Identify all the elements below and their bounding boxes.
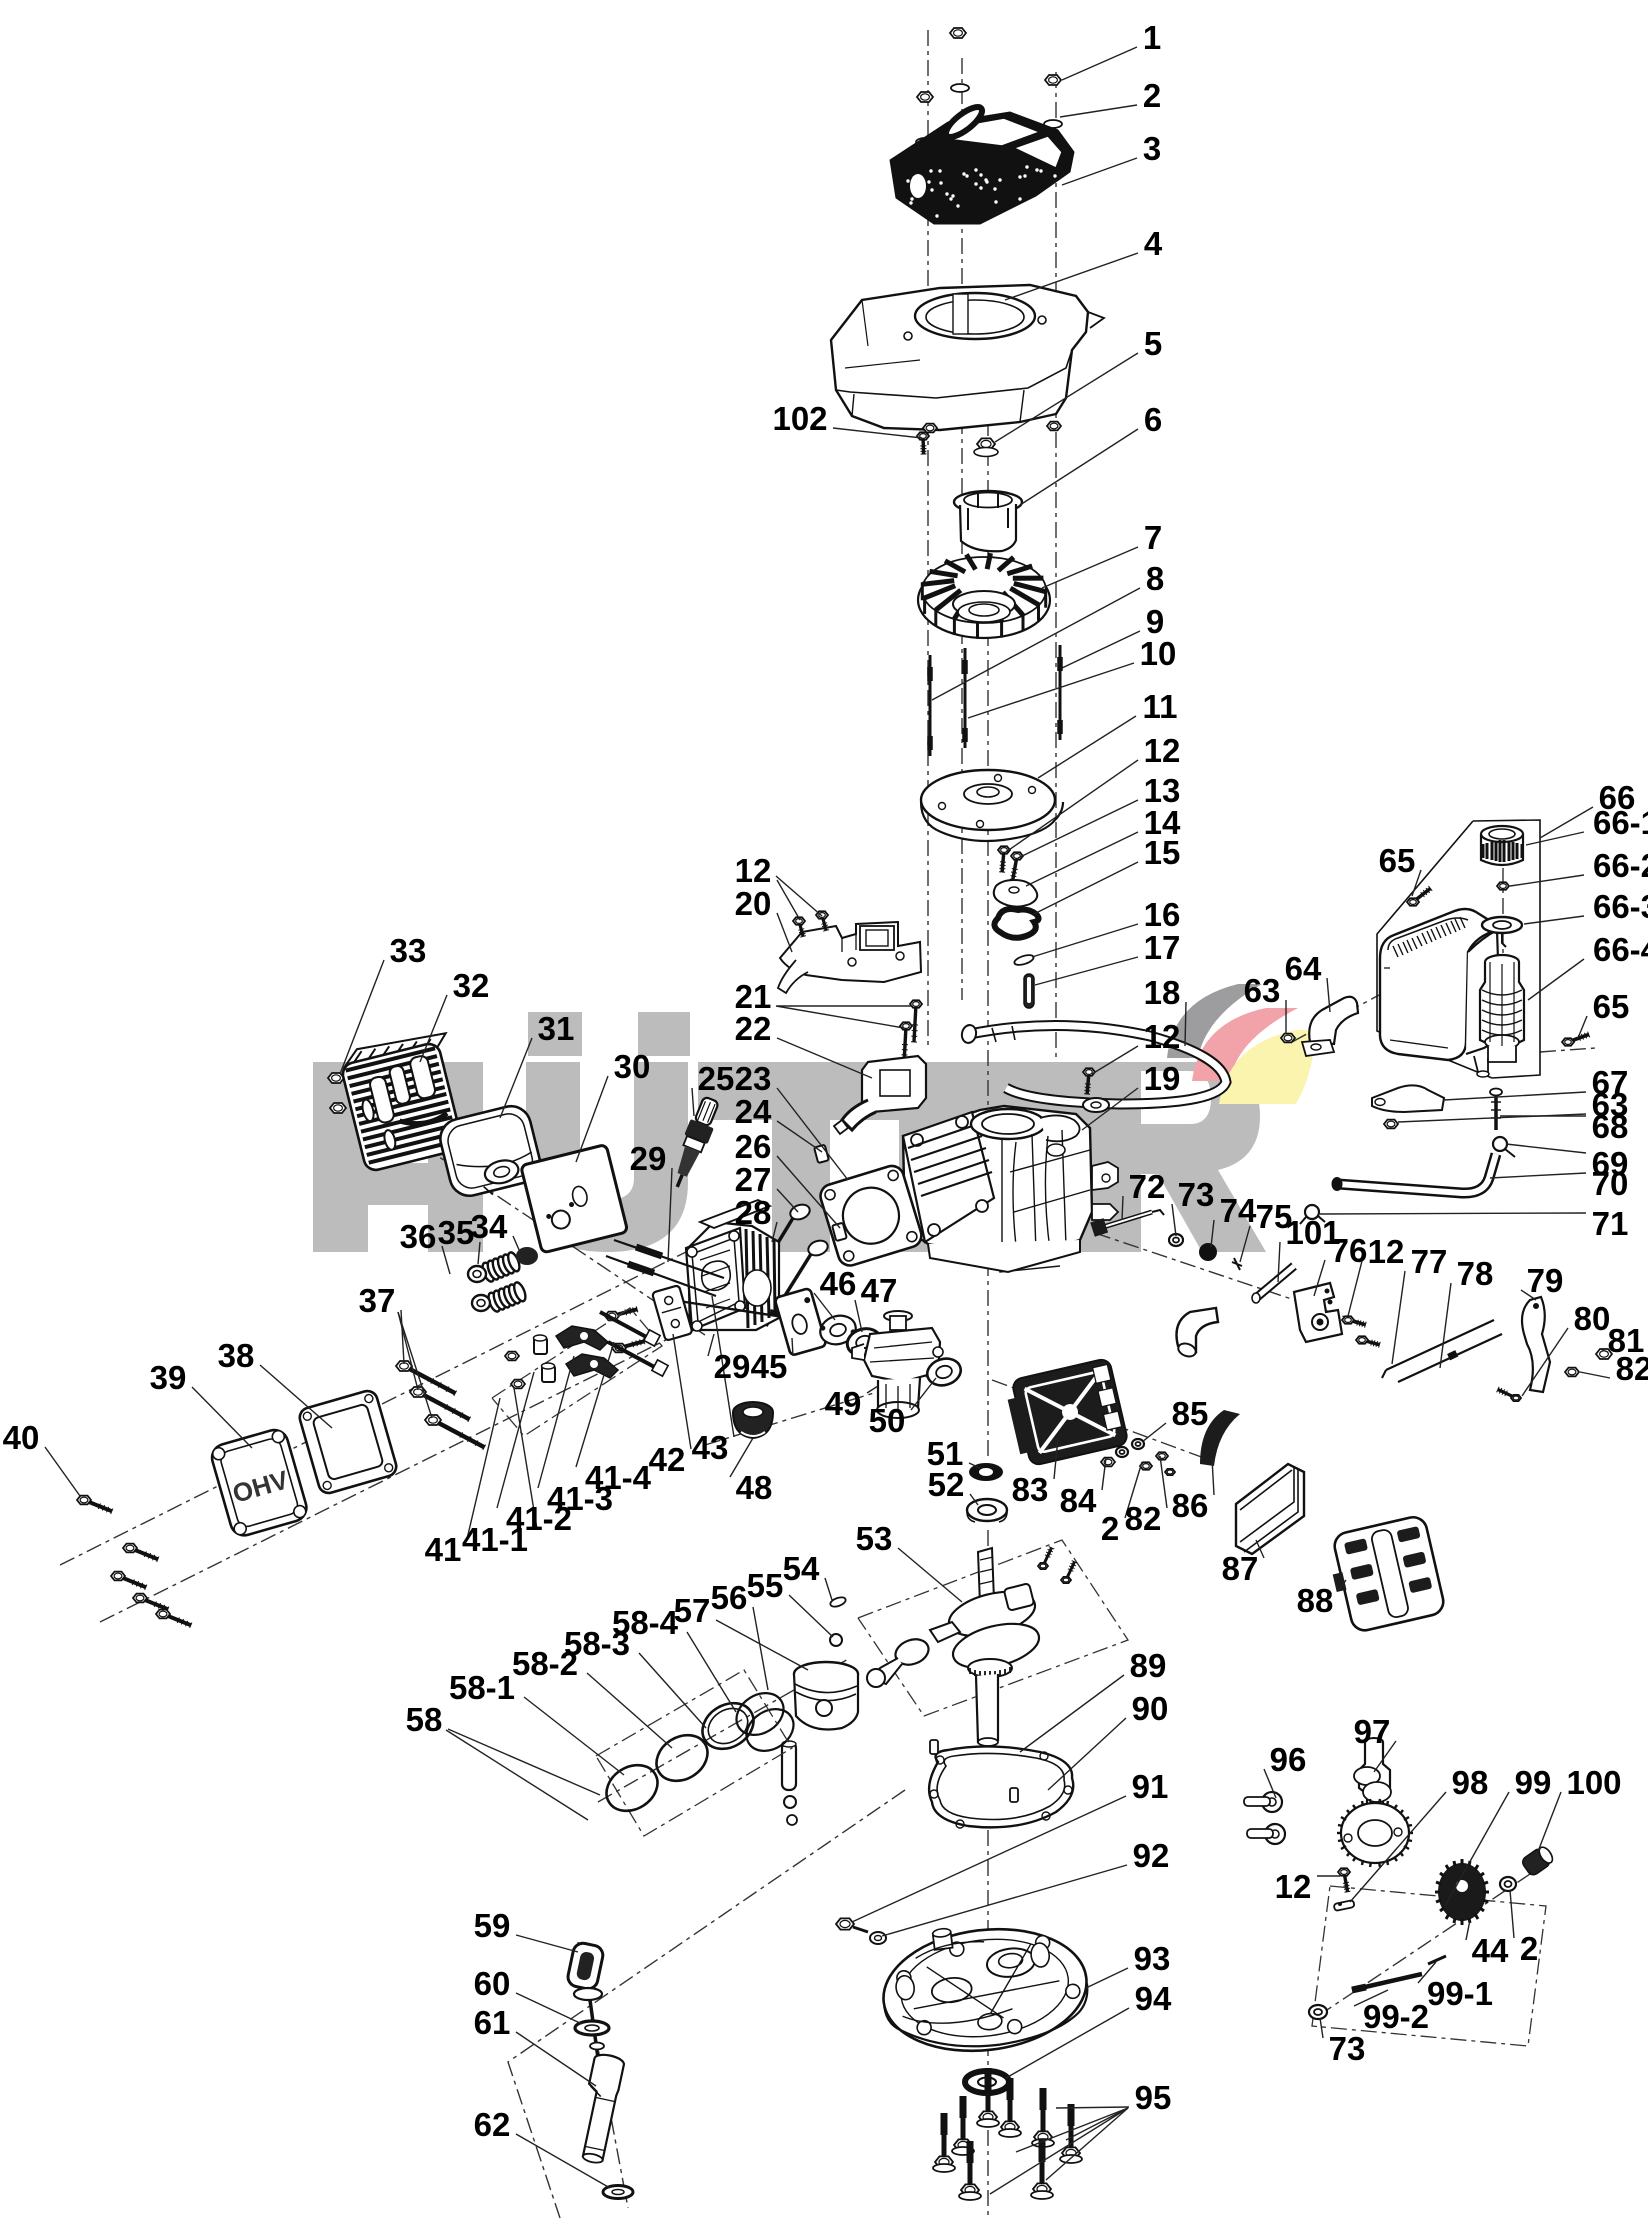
svg-text:79: 79: [1527, 1262, 1564, 1299]
svg-text:57: 57: [674, 1592, 711, 1629]
svg-text:87: 87: [1222, 1550, 1259, 1587]
svg-text:4: 4: [1144, 225, 1163, 262]
svg-text:32: 32: [453, 967, 490, 1004]
svg-text:27: 27: [735, 1161, 772, 1198]
svg-text:7: 7: [1144, 519, 1162, 556]
svg-text:24: 24: [735, 1093, 772, 1130]
svg-text:31: 31: [538, 1010, 575, 1047]
svg-text:42: 42: [649, 1441, 686, 1478]
svg-text:56: 56: [711, 1579, 748, 1616]
svg-text:49: 49: [825, 1385, 862, 1422]
svg-text:83: 83: [1012, 1471, 1049, 1508]
svg-text:34: 34: [471, 1208, 508, 1245]
svg-text:66-3: 66-3: [1593, 888, 1648, 925]
svg-text:86: 86: [1172, 1487, 1209, 1524]
svg-text:92: 92: [1133, 1837, 1170, 1874]
svg-text:28: 28: [735, 1194, 772, 1231]
svg-text:61: 61: [474, 2004, 511, 2041]
svg-text:59: 59: [474, 1907, 511, 1944]
svg-text:55: 55: [747, 1567, 784, 1604]
svg-text:41-4: 41-4: [585, 1459, 652, 1496]
svg-text:6: 6: [1144, 401, 1162, 438]
svg-text:70: 70: [1592, 1165, 1629, 1202]
svg-text:45: 45: [751, 1348, 788, 1385]
svg-text:29: 29: [714, 1348, 751, 1385]
svg-text:53: 53: [856, 1520, 893, 1557]
svg-text:35: 35: [438, 1214, 475, 1251]
svg-text:22: 22: [735, 1010, 772, 1047]
svg-text:93: 93: [1134, 1940, 1171, 1977]
svg-text:44: 44: [1472, 1932, 1509, 1969]
svg-text:95: 95: [1135, 2079, 1172, 2116]
svg-text:77: 77: [1411, 1243, 1448, 1280]
svg-text:99: 99: [1515, 1764, 1552, 1801]
svg-text:23: 23: [735, 1060, 772, 1097]
svg-text:1: 1: [1143, 19, 1161, 56]
svg-text:99-1: 99-1: [1427, 1975, 1493, 2012]
svg-text:11: 11: [1143, 688, 1178, 725]
svg-text:84: 84: [1060, 1482, 1097, 1519]
svg-text:2: 2: [1520, 1930, 1538, 1967]
svg-text:40: 40: [3, 1419, 40, 1456]
svg-text:12: 12: [1144, 732, 1181, 769]
svg-text:78: 78: [1457, 1255, 1494, 1292]
svg-text:82: 82: [1616, 1350, 1648, 1387]
svg-text:2: 2: [1101, 1510, 1119, 1547]
svg-text:38: 38: [218, 1337, 255, 1374]
svg-text:64: 64: [1285, 950, 1322, 987]
svg-text:62: 62: [474, 2106, 511, 2143]
svg-text:94: 94: [1135, 1980, 1172, 2017]
svg-text:58-1: 58-1: [449, 1669, 515, 1706]
svg-text:18: 18: [1144, 974, 1181, 1011]
svg-text:66-4: 66-4: [1593, 931, 1648, 968]
svg-text:71: 71: [1592, 1205, 1629, 1242]
svg-text:80: 80: [1574, 1300, 1611, 1337]
svg-text:26: 26: [735, 1128, 772, 1165]
svg-text:66-2: 66-2: [1593, 847, 1648, 884]
svg-text:10: 10: [1140, 635, 1177, 672]
svg-text:65: 65: [1593, 988, 1630, 1025]
svg-text:12: 12: [735, 852, 772, 889]
svg-text:91: 91: [1132, 1768, 1169, 1805]
svg-text:43: 43: [692, 1429, 729, 1466]
svg-text:17: 17: [1144, 929, 1181, 966]
svg-text:88: 88: [1297, 1582, 1334, 1619]
svg-text:15: 15: [1144, 834, 1181, 871]
svg-text:66-1: 66-1: [1593, 804, 1648, 841]
svg-text:20: 20: [735, 885, 772, 922]
svg-text:5: 5: [1144, 325, 1162, 362]
svg-text:96: 96: [1270, 1741, 1307, 1778]
svg-text:89: 89: [1130, 1647, 1167, 1684]
svg-text:90: 90: [1132, 1690, 1169, 1727]
svg-text:60: 60: [474, 1965, 511, 2002]
svg-text:30: 30: [614, 1048, 651, 1085]
svg-text:63: 63: [1244, 972, 1281, 1009]
svg-text:19: 19: [1144, 1060, 1181, 1097]
svg-text:29: 29: [630, 1140, 667, 1177]
svg-text:47: 47: [861, 1272, 898, 1309]
svg-text:48: 48: [736, 1469, 773, 1506]
svg-text:100: 100: [1566, 1764, 1621, 1801]
svg-text:12: 12: [1144, 1018, 1181, 1055]
svg-text:58-4: 58-4: [612, 1604, 679, 1641]
svg-text:74: 74: [1220, 1192, 1257, 1229]
svg-text:72: 72: [1129, 1168, 1166, 1205]
svg-text:58: 58: [406, 1701, 443, 1738]
svg-text:37: 37: [359, 1282, 396, 1319]
svg-text:65: 65: [1379, 842, 1416, 879]
svg-text:52: 52: [928, 1466, 965, 1503]
svg-text:54: 54: [783, 1550, 820, 1587]
svg-text:82: 82: [1125, 1500, 1162, 1537]
svg-text:99-2: 99-2: [1363, 1998, 1429, 2035]
svg-text:46: 46: [820, 1265, 857, 1302]
svg-text:68: 68: [1592, 1108, 1629, 1145]
svg-text:8: 8: [1146, 560, 1164, 597]
svg-text:98: 98: [1452, 1764, 1489, 1801]
svg-text:73: 73: [1178, 1176, 1215, 1213]
svg-text:25: 25: [698, 1060, 735, 1097]
svg-text:33: 33: [390, 932, 427, 969]
svg-text:3: 3: [1143, 130, 1161, 167]
svg-text:12: 12: [1275, 1868, 1312, 1905]
svg-text:73: 73: [1329, 2030, 1366, 2067]
svg-text:50: 50: [869, 1402, 906, 1439]
svg-text:85: 85: [1172, 1395, 1209, 1432]
svg-text:41: 41: [425, 1531, 462, 1568]
svg-text:97: 97: [1354, 1713, 1391, 1750]
svg-text:2: 2: [1143, 77, 1161, 114]
svg-text:102: 102: [772, 400, 827, 437]
svg-text:39: 39: [150, 1359, 187, 1396]
svg-text:36: 36: [400, 1218, 437, 1255]
svg-text:16: 16: [1144, 896, 1181, 933]
svg-text:12: 12: [1368, 1233, 1405, 1270]
